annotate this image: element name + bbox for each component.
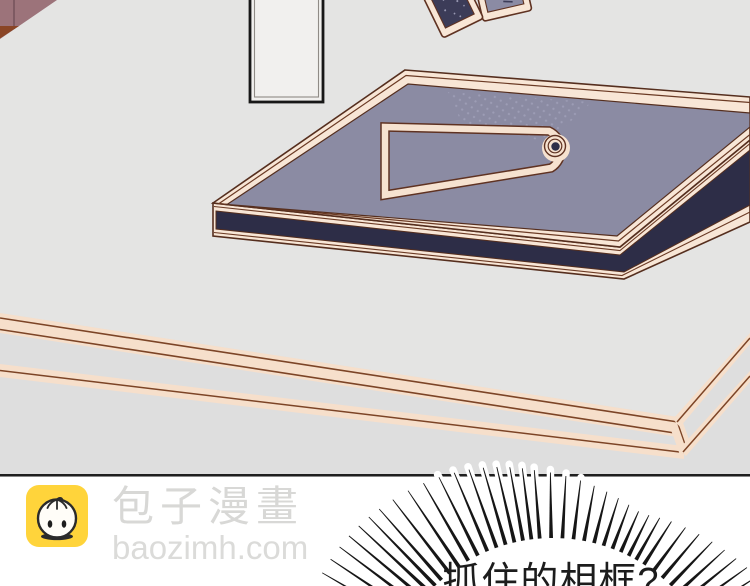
hanger-hole <box>551 142 559 150</box>
panel-divider <box>0 474 750 477</box>
comic-panel: 抓住的相框? 包子漫畫 baozimh.com <box>0 0 750 586</box>
speech-bubble-text: 抓住的相框? <box>442 563 659 586</box>
standing-frame <box>250 0 323 102</box>
scene-art <box>0 0 750 586</box>
